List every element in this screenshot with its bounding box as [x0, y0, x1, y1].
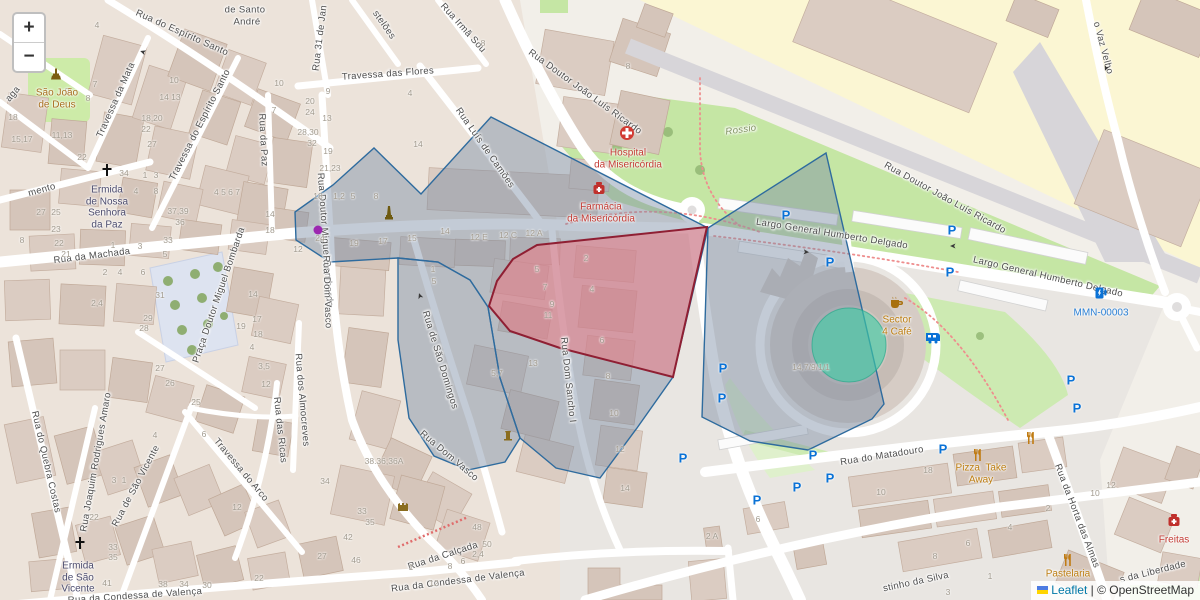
map-canvas[interactable]: Rua do Espírito SantoTravessa do Espírit…	[0, 0, 1200, 600]
zoom-out-button[interactable]: −	[14, 43, 44, 71]
zoom-control: + −	[12, 12, 46, 73]
ukraine-flag-icon	[1037, 586, 1048, 594]
map-attribution: Leaflet | © OpenStreetMap	[1031, 581, 1200, 600]
map-tiles	[0, 0, 1200, 600]
leaflet-link[interactable]: Leaflet	[1051, 583, 1087, 597]
attribution-separator: |	[1087, 583, 1097, 597]
zoom-in-button[interactable]: +	[14, 14, 44, 43]
osm-credit: © OpenStreetMap	[1097, 583, 1194, 597]
overlay-roundabout-circle[interactable]	[812, 308, 886, 382]
